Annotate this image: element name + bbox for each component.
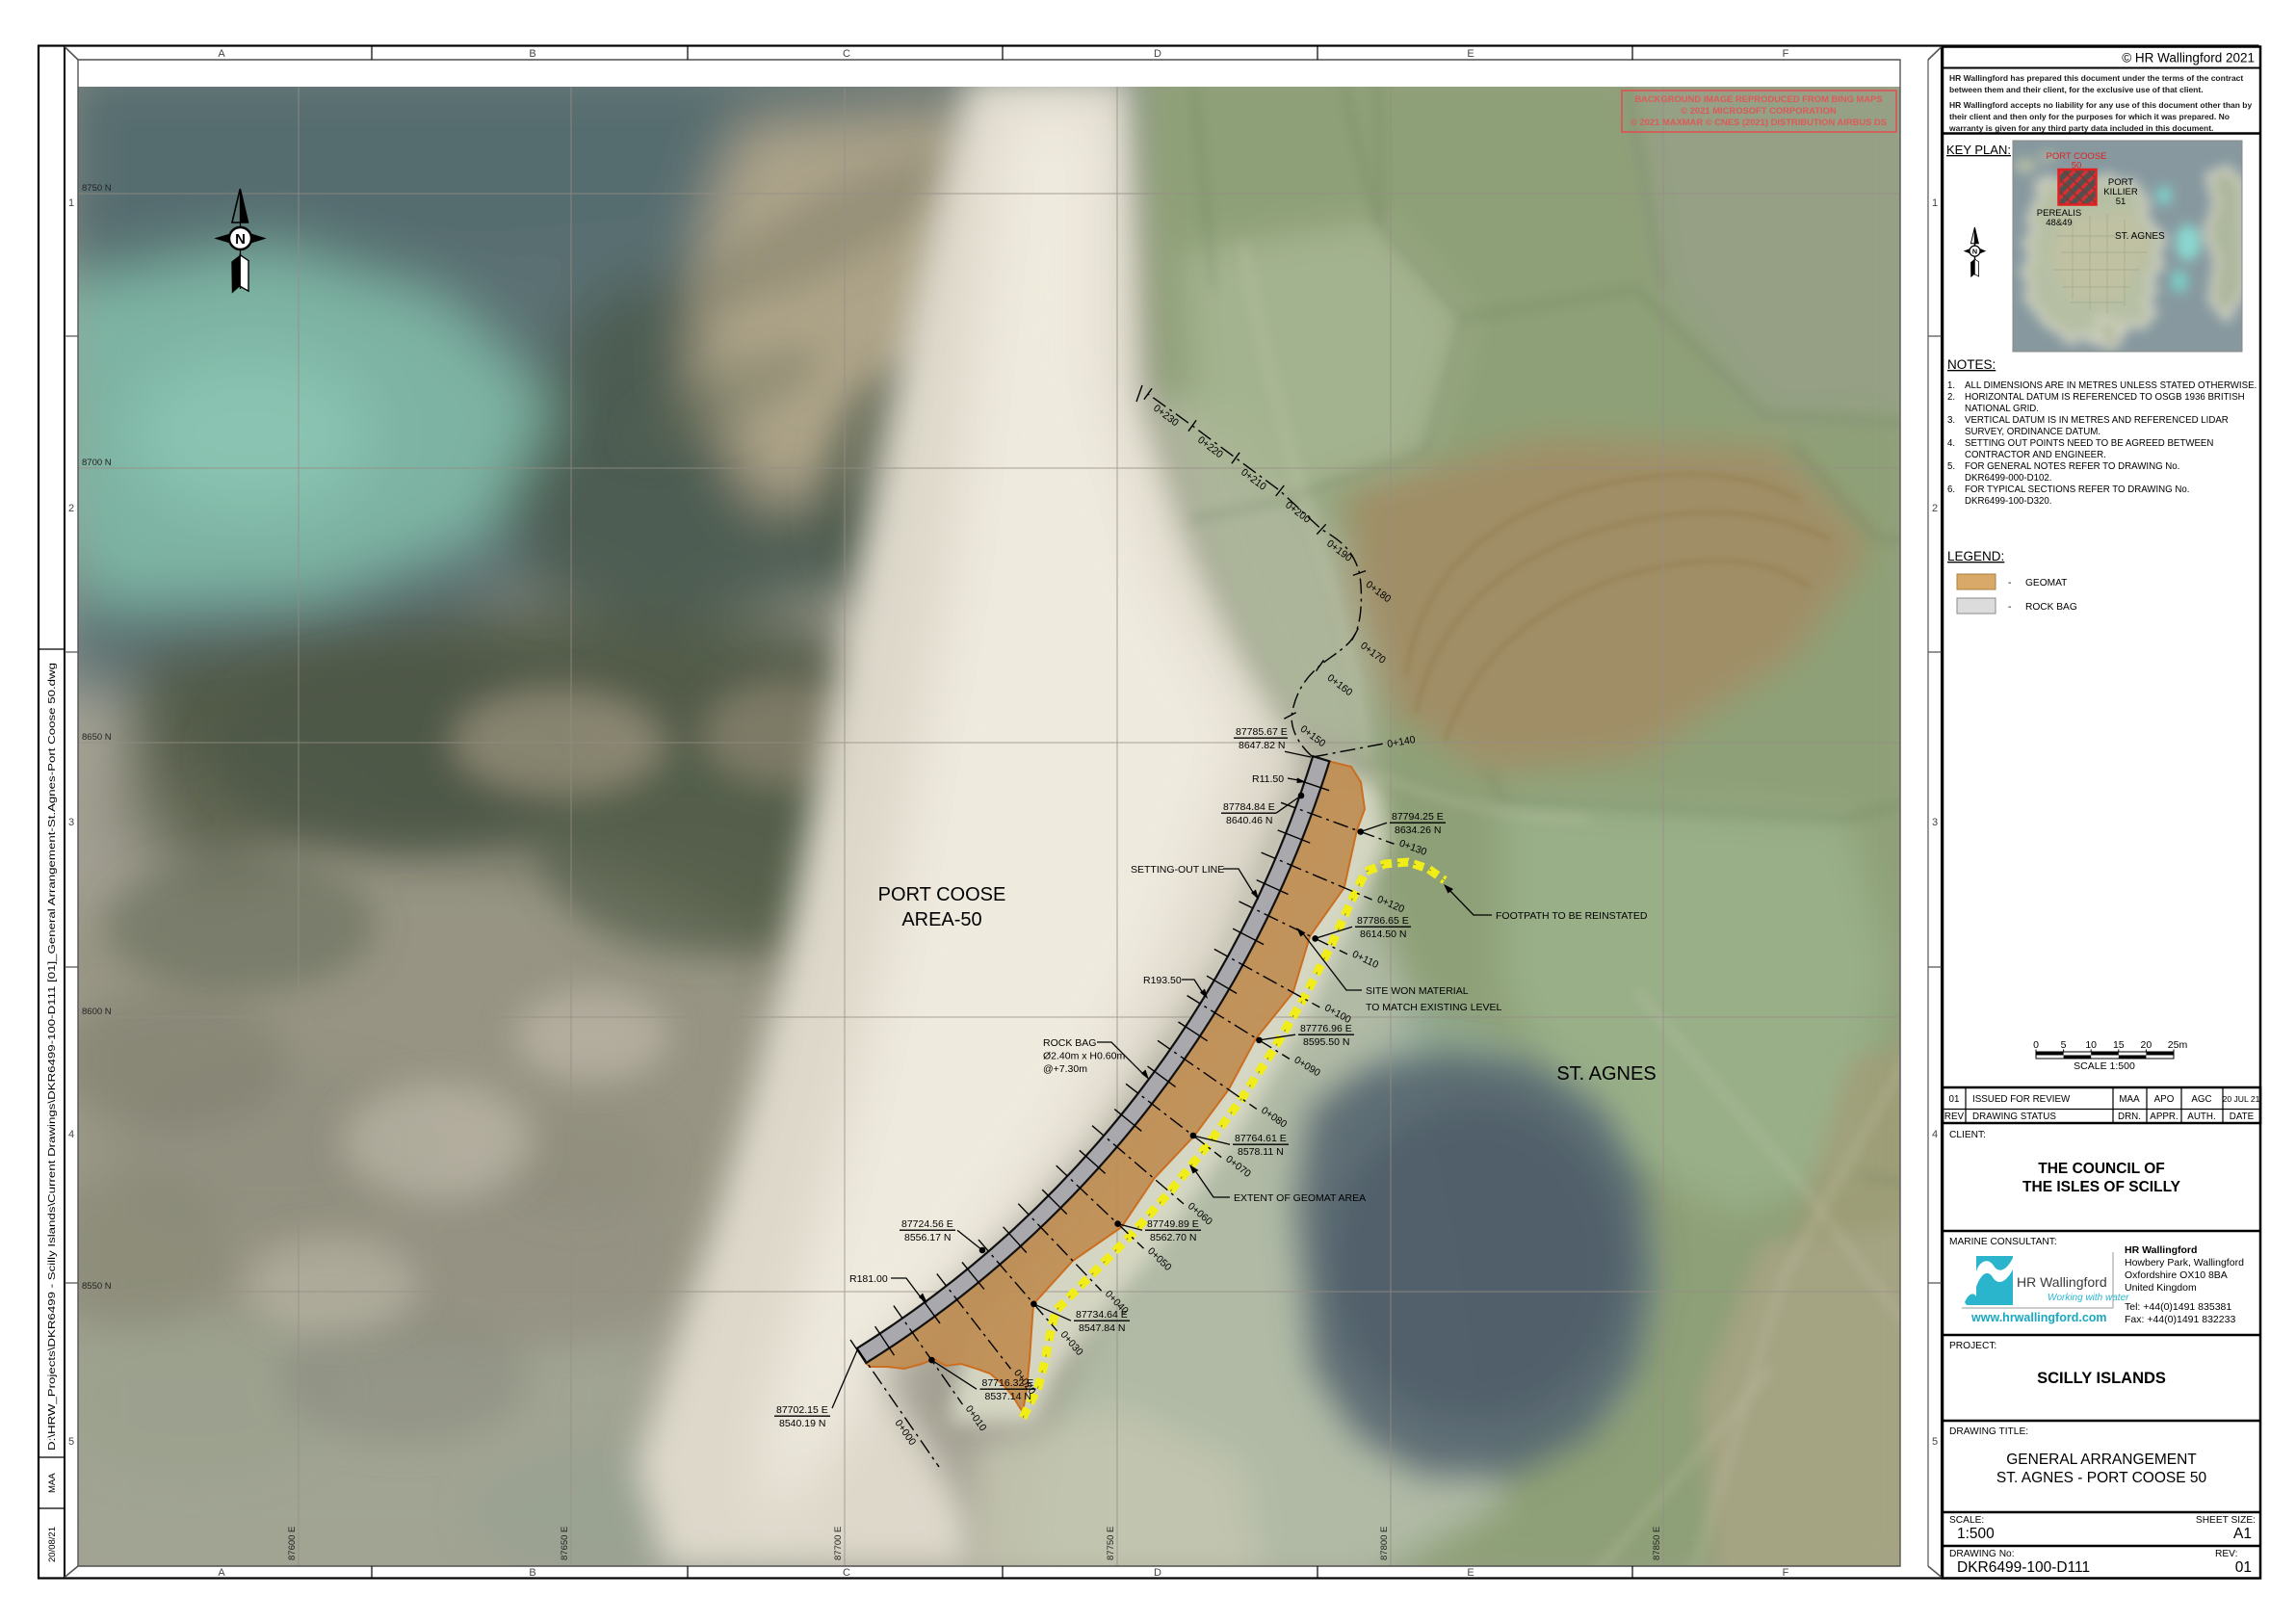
svg-text:THE COUNCIL OF: THE COUNCIL OF xyxy=(2038,1161,2164,1177)
svg-text:4.: 4. xyxy=(1947,438,1955,449)
svg-text:A: A xyxy=(218,1567,225,1579)
svg-text:REV: REV xyxy=(1944,1112,1965,1122)
svg-text:01: 01 xyxy=(1949,1094,1960,1105)
svg-text:United Kingdom: United Kingdom xyxy=(2125,1282,2197,1294)
svg-text:3: 3 xyxy=(1932,817,1938,828)
svg-text:DKR6499-100-D111: DKR6499-100-D111 xyxy=(1957,1559,2090,1576)
svg-text:10: 10 xyxy=(2085,1039,2097,1051)
svg-text:B: B xyxy=(529,48,535,60)
svg-text:4: 4 xyxy=(1932,1129,1938,1140)
svg-text:DRAWING TITLE:: DRAWING TITLE: xyxy=(1949,1426,2028,1437)
svg-text:SETTING-OUT LINE: SETTING-OUT LINE xyxy=(1131,864,1224,876)
svg-text:www.hrwallingford.com: www.hrwallingford.com xyxy=(1970,1311,2107,1324)
svg-text:87734.64 E: 87734.64 E xyxy=(1076,1309,1128,1321)
svg-text:Ø2.40m x H0.60m: Ø2.40m x H0.60m xyxy=(1043,1051,1125,1062)
svg-text:3: 3 xyxy=(68,817,74,828)
svg-text:E: E xyxy=(1467,48,1474,60)
svg-text:NOTES:: NOTES: xyxy=(1947,357,1996,372)
svg-text:2: 2 xyxy=(68,503,74,514)
svg-text:HR Wallingford: HR Wallingford xyxy=(2017,1274,2107,1290)
svg-text:87784.84 E: 87784.84 E xyxy=(1223,801,1275,813)
svg-text:CLIENT:: CLIENT: xyxy=(1949,1130,1986,1140)
svg-text:SCALE:: SCALE: xyxy=(1949,1515,1984,1526)
svg-text:© HR Wallingford 2021: © HR Wallingford 2021 xyxy=(2122,51,2255,65)
svg-text:FOR GENERAL NOTES REFER TO DRA: FOR GENERAL NOTES REFER TO DRAWING No. xyxy=(1965,461,2179,472)
svg-text:1.: 1. xyxy=(1947,380,1955,391)
svg-text:Working with water: Working with water xyxy=(2048,1293,2129,1303)
svg-text:SHEET SIZE:: SHEET SIZE: xyxy=(2196,1515,2256,1526)
svg-text:15: 15 xyxy=(2113,1039,2125,1051)
svg-text:DKR6499-000-D102.: DKR6499-000-D102. xyxy=(1965,473,2051,484)
svg-text:5: 5 xyxy=(2061,1039,2067,1051)
svg-text:8540.19 N: 8540.19 N xyxy=(779,1418,825,1429)
svg-text:C: C xyxy=(843,1567,850,1579)
svg-text:N: N xyxy=(1972,247,1977,255)
svg-text:ALL DIMENSIONS ARE IN METRES U: ALL DIMENSIONS ARE IN METRES UNLESS STAT… xyxy=(1965,380,2257,391)
svg-text:25m: 25m xyxy=(2168,1039,2188,1051)
svg-text:BACKGROUND IMAGE REPRODUCED FR: BACKGROUND IMAGE REPRODUCED FROM BING MA… xyxy=(1634,93,1882,104)
svg-text:ST. AGNES: ST. AGNES xyxy=(2115,231,2165,242)
svg-text:SCILLY ISLANDS: SCILLY ISLANDS xyxy=(2037,1370,2166,1387)
svg-text:87650 E: 87650 E xyxy=(560,1527,570,1560)
svg-text:SETTING OUT POINTS NEED TO BE: SETTING OUT POINTS NEED TO BE AGREED BET… xyxy=(1965,438,2213,449)
svg-text:ROCK BAG: ROCK BAG xyxy=(1043,1037,1096,1049)
svg-text:D:\HRW_Projects\DKR6499 - Scil: D:\HRW_Projects\DKR6499 - Scilly Islands… xyxy=(47,663,58,1451)
svg-text:© 2021 MICROSOFT CORPORATION: © 2021 MICROSOFT CORPORATION xyxy=(1681,105,1837,116)
svg-text:APPR.: APPR. xyxy=(2150,1112,2178,1122)
svg-text:5.: 5. xyxy=(1947,461,1955,472)
svg-text:F: F xyxy=(1783,1567,1789,1579)
svg-text:between them and their client,: between them and their client, for the e… xyxy=(1949,85,2204,94)
svg-text:5: 5 xyxy=(68,1436,74,1448)
svg-text:B: B xyxy=(529,1567,535,1579)
svg-text:C: C xyxy=(843,48,850,60)
svg-text:D: D xyxy=(1154,1567,1161,1579)
svg-text:SCALE 1:500: SCALE 1:500 xyxy=(2074,1060,2135,1072)
svg-text:8547.84 N: 8547.84 N xyxy=(1079,1322,1125,1334)
svg-text:HORIZONTAL DATUM IS REFERENCED: HORIZONTAL DATUM IS REFERENCED TO OSGB 1… xyxy=(1965,392,2245,403)
svg-text:8700 N: 8700 N xyxy=(82,458,112,468)
svg-text:PORT COOSE: PORT COOSE xyxy=(878,884,1006,905)
svg-text:87800 E: 87800 E xyxy=(1379,1527,1390,1560)
svg-text:20: 20 xyxy=(2141,1039,2152,1051)
svg-text:AUTH.: AUTH. xyxy=(2187,1112,2215,1122)
svg-text:8634.26 N: 8634.26 N xyxy=(1395,824,1441,836)
svg-text:DRAWING No:: DRAWING No: xyxy=(1949,1549,2015,1559)
svg-text:87700 E: 87700 E xyxy=(833,1527,844,1560)
svg-text:Howbery Park, Wallingford: Howbery Park, Wallingford xyxy=(2125,1257,2244,1269)
svg-text:87600 E: 87600 E xyxy=(287,1527,298,1560)
svg-text:8550 N: 8550 N xyxy=(82,1281,112,1292)
svg-text:8750 N: 8750 N xyxy=(82,183,112,194)
svg-text:CONTRACTOR AND ENGINEER.: CONTRACTOR AND ENGINEER. xyxy=(1965,450,2106,460)
svg-text:MARINE CONSULTANT:: MARINE CONSULTANT: xyxy=(1949,1237,2057,1247)
svg-text:87776.96 E: 87776.96 E xyxy=(1300,1023,1352,1034)
svg-text:R181.00: R181.00 xyxy=(849,1273,888,1285)
svg-text:AGC: AGC xyxy=(2191,1094,2211,1105)
svg-text:Tel: +44(0)1491 835381: Tel: +44(0)1491 835381 xyxy=(2125,1301,2231,1313)
svg-text:R11.50: R11.50 xyxy=(1252,773,1284,785)
svg-text:-: - xyxy=(2008,578,2011,589)
svg-text:warranty is given for any thir: warranty is given for any third party da… xyxy=(1948,123,2213,133)
svg-text:TO MATCH EXISTING LEVEL: TO MATCH EXISTING LEVEL xyxy=(1366,1002,1502,1013)
svg-text:8640.46 N: 8640.46 N xyxy=(1226,815,1272,826)
svg-text:THE ISLES OF SCILLY: THE ISLES OF SCILLY xyxy=(2022,1179,2181,1195)
svg-text:-: - xyxy=(2008,602,2011,613)
svg-text:0: 0 xyxy=(2033,1039,2039,1051)
svg-text:@+7.30m: @+7.30m xyxy=(1043,1063,1087,1075)
svg-text:KEY PLAN:: KEY PLAN: xyxy=(1946,143,2011,157)
svg-text:E: E xyxy=(1467,1567,1474,1579)
svg-text:51: 51 xyxy=(2116,196,2126,207)
svg-text:8556.17 N: 8556.17 N xyxy=(904,1232,951,1243)
svg-text:5: 5 xyxy=(1932,1436,1938,1448)
svg-text:01: 01 xyxy=(2235,1559,2252,1576)
svg-text:SITE WON MATERIAL: SITE WON MATERIAL xyxy=(1366,985,1469,997)
svg-text:MAA: MAA xyxy=(47,1473,58,1493)
svg-text:DRAWING STATUS: DRAWING STATUS xyxy=(1972,1112,2056,1122)
svg-text:FOOTPATH TO BE REINSTATED: FOOTPATH TO BE REINSTATED xyxy=(1496,910,1648,922)
svg-text:MAA: MAA xyxy=(2119,1094,2140,1105)
svg-text:DKR6499-100-D320.: DKR6499-100-D320. xyxy=(1965,496,2051,507)
svg-text:1: 1 xyxy=(1932,197,1938,209)
svg-text:their client and then only for: their client and then only for the purpo… xyxy=(1949,112,2230,121)
svg-text:87716.32 E: 87716.32 E xyxy=(982,1377,1034,1389)
svg-text:ROCK BAG: ROCK BAG xyxy=(2025,602,2077,613)
svg-text:FOR TYPICAL SECTIONS REFER TO: FOR TYPICAL SECTIONS REFER TO DRAWING No… xyxy=(1965,484,2189,495)
svg-text:48&49: 48&49 xyxy=(2046,218,2072,228)
svg-text:87749.89 E: 87749.89 E xyxy=(1147,1218,1199,1230)
svg-text:R193.50: R193.50 xyxy=(1143,975,1182,986)
svg-text:Fax: +44(0)1491 832233: Fax: +44(0)1491 832233 xyxy=(2125,1314,2235,1325)
svg-text:8614.50 N: 8614.50 N xyxy=(1360,929,1406,940)
svg-text:1:500: 1:500 xyxy=(1957,1526,1995,1542)
svg-text:NATIONAL GRID.: NATIONAL GRID. xyxy=(1965,404,2039,414)
svg-text:ST. AGNES: ST. AGNES xyxy=(1556,1063,1656,1085)
svg-text:1: 1 xyxy=(68,197,74,209)
svg-text:VERTICAL DATUM IS IN METRES AN: VERTICAL DATUM IS IN METRES AND REFERENC… xyxy=(1965,415,2229,426)
svg-text:8578.11 N: 8578.11 N xyxy=(1238,1146,1284,1158)
svg-text:© 2021 MAXMAR © CNES (2021) DI: © 2021 MAXMAR © CNES (2021) DISTRIBUTION… xyxy=(1631,117,1887,127)
svg-text:LEGEND:: LEGEND: xyxy=(1947,549,2004,563)
svg-text:GENERAL ARRANGEMENT: GENERAL ARRANGEMENT xyxy=(2006,1452,2197,1468)
svg-text:PROJECT:: PROJECT: xyxy=(1949,1341,1996,1351)
svg-text:EXTENT OF GEOMAT AREA: EXTENT OF GEOMAT AREA xyxy=(1234,1192,1366,1204)
svg-text:AREA-50: AREA-50 xyxy=(901,909,981,930)
svg-text:ISSUED FOR REVIEW: ISSUED FOR REVIEW xyxy=(1972,1094,2071,1105)
svg-text:3.: 3. xyxy=(1947,415,1955,426)
svg-text:DRN.: DRN. xyxy=(2118,1112,2141,1122)
svg-text:ST. AGNES - PORT COOSE 50: ST. AGNES - PORT COOSE 50 xyxy=(1996,1470,2207,1486)
svg-text:D: D xyxy=(1154,48,1161,60)
svg-text:8600 N: 8600 N xyxy=(82,1007,112,1017)
svg-text:8650 N: 8650 N xyxy=(82,732,112,743)
svg-text:87794.25 E: 87794.25 E xyxy=(1392,811,1444,823)
svg-text:87724.56 E: 87724.56 E xyxy=(901,1218,953,1230)
svg-text:50: 50 xyxy=(2072,161,2082,171)
svg-text:F: F xyxy=(1783,48,1789,60)
svg-text:6.: 6. xyxy=(1947,484,1955,495)
svg-text:GEOMAT: GEOMAT xyxy=(2025,578,2067,589)
svg-text:4: 4 xyxy=(68,1129,74,1140)
svg-text:2.: 2. xyxy=(1947,392,1955,403)
svg-text:HR Wallingford has prepared th: HR Wallingford has prepared this documen… xyxy=(1949,73,2243,83)
svg-text:87702.15 E: 87702.15 E xyxy=(776,1404,828,1416)
svg-text:87785.67 E: 87785.67 E xyxy=(1236,726,1288,738)
svg-text:8562.70 N: 8562.70 N xyxy=(1150,1232,1196,1243)
svg-text:A: A xyxy=(218,48,225,60)
svg-text:HR Wallingford accepts no liab: HR Wallingford accepts no liability for … xyxy=(1949,100,2252,110)
svg-text:8647.82 N: 8647.82 N xyxy=(1239,740,1285,751)
svg-text:REV:: REV: xyxy=(2215,1549,2237,1559)
svg-text:Oxfordshire OX10 8BA: Oxfordshire OX10 8BA xyxy=(2125,1269,2228,1281)
svg-text:87850 E: 87850 E xyxy=(1652,1527,1662,1560)
svg-text:APO: APO xyxy=(2154,1094,2175,1105)
svg-text:8537.14 N: 8537.14 N xyxy=(985,1391,1031,1402)
svg-text:87750 E: 87750 E xyxy=(1106,1527,1116,1560)
svg-text:A1: A1 xyxy=(2233,1526,2252,1542)
svg-text:HR Wallingford: HR Wallingford xyxy=(2125,1244,2197,1256)
svg-text:SURVEY, ORDINANCE DATUM.: SURVEY, ORDINANCE DATUM. xyxy=(1965,427,2100,437)
svg-text:DATE: DATE xyxy=(2230,1112,2255,1122)
svg-text:2: 2 xyxy=(1932,503,1938,514)
svg-text:20/08/21: 20/08/21 xyxy=(47,1527,58,1562)
svg-text:87786.65 E: 87786.65 E xyxy=(1357,915,1409,927)
svg-text:20 JUL 21: 20 JUL 21 xyxy=(2223,1094,2260,1104)
svg-text:87764.61 E: 87764.61 E xyxy=(1235,1133,1287,1144)
svg-text:8595.50 N: 8595.50 N xyxy=(1303,1036,1349,1048)
svg-text:N: N xyxy=(235,231,246,248)
